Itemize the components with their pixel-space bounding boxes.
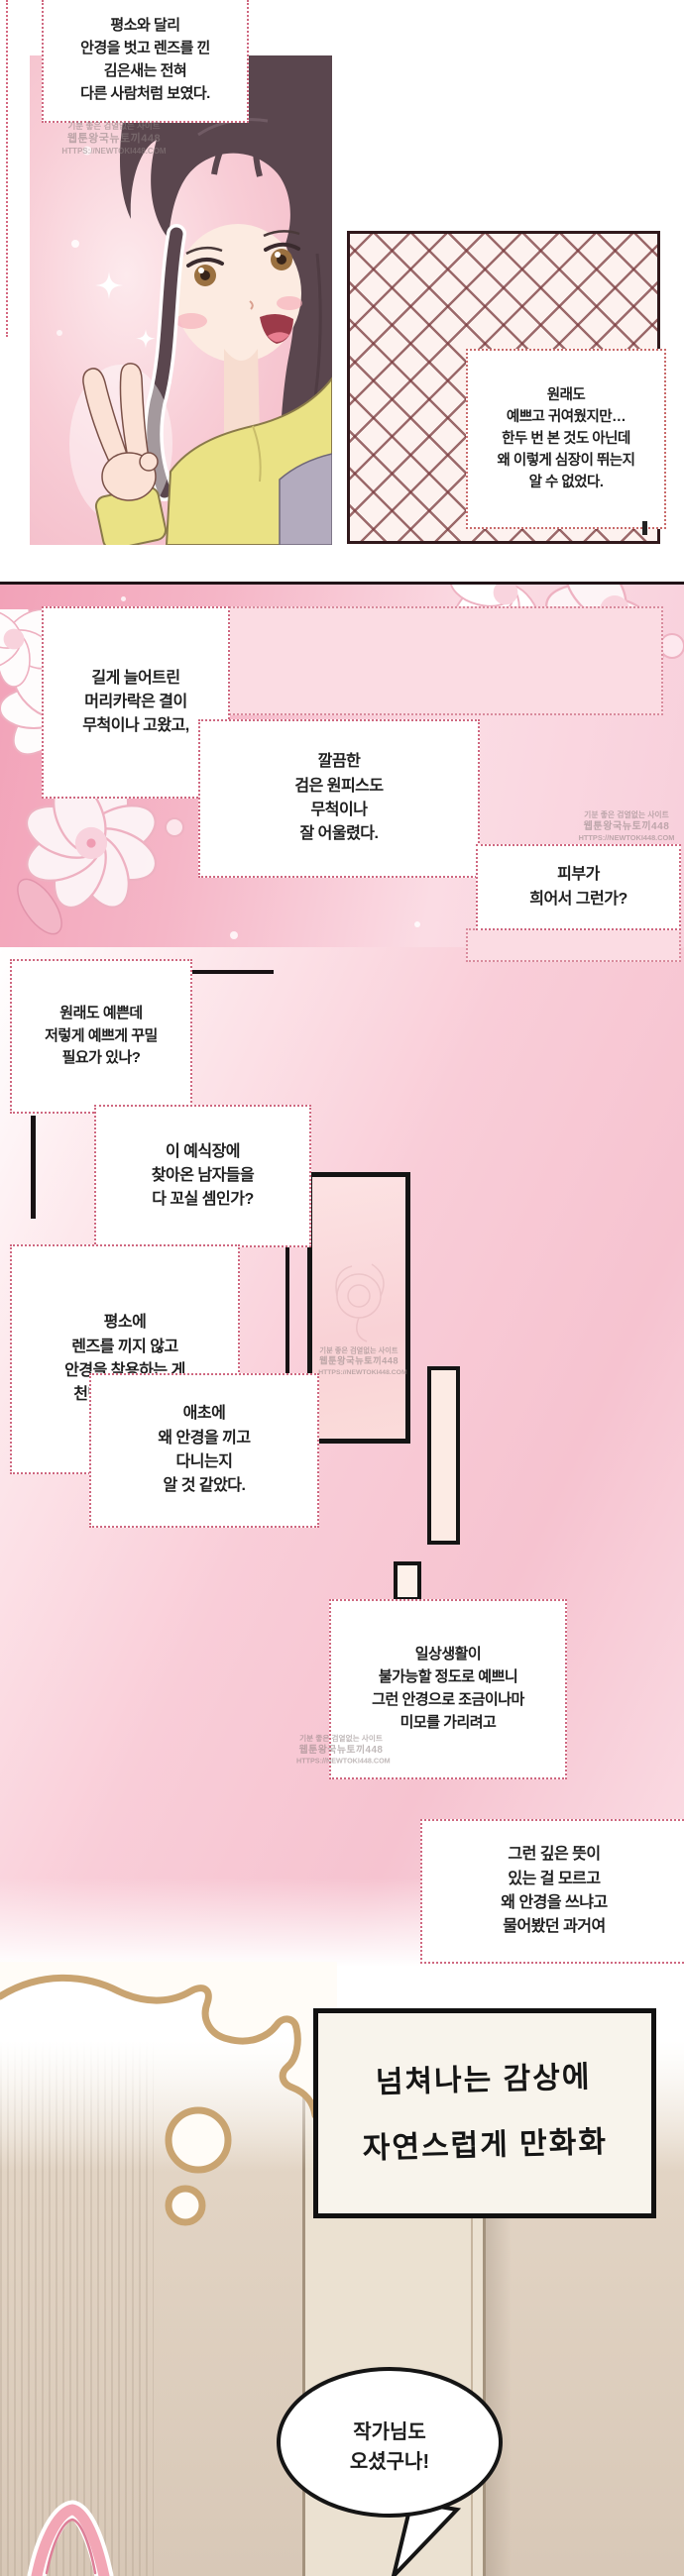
watermark-line: 웹툰왕국뉴토끼448 (40, 132, 188, 147)
thought-bubble-why-glasses: 애초에 왜 안경을 끼고 다니는지 알 것 같았다. (89, 1373, 319, 1528)
narration-text: 이 예식장에 찾아온 남자들을 다 꼬실 셈인가? (152, 1140, 255, 1213)
thought-bubble-main: 원래도 예쁘고 귀여웠지만… 한두 번 본 것도 아닌데 왜 이렇게 심장이 뛰… (466, 349, 666, 529)
narration-text: 애초에 왜 안경을 끼고 다니는지 알 것 같았다. (158, 1402, 250, 1498)
narration-text: 원래도 예쁘고 귀여웠지만… 한두 번 본 것도 아닌데 왜 이렇게 심장이 뛰… (498, 384, 635, 493)
cloud-circle-large (169, 2110, 228, 2170)
narration-text: 일상생활이 불가능할 정도로 예쁘니 그런 안경으로 조금이나마 미모를 가리려… (372, 1644, 524, 1734)
cloud-fill (0, 1962, 337, 2115)
panel-inset-tall (307, 1172, 410, 1444)
narration-box-intro: 평소와 달리 안경을 벗고 렌즈를 낀 김은새는 전혀 다른 사람처럼 보였다. (42, 0, 249, 123)
narration-text: 깔끔한 검은 원피스도 무척이나 잘 어울렸다. (294, 750, 383, 846)
site-watermark: 기분 좋은 검열없는 사이트 웹툰왕국뉴토끼448 HTTPS://NEWTOK… (577, 809, 675, 843)
page-edge-dotted-line (6, 0, 8, 337)
sparkle-dot (121, 596, 126, 601)
thought-bubble-dress: 깔끔한 검은 원피스도 무척이나 잘 어울렸다. (198, 719, 480, 878)
face (174, 224, 302, 363)
note-text: 넘쳐나는 감상에 자연스럽게 만화화 (361, 2045, 610, 2182)
panel-inset-narrow (427, 1366, 460, 1545)
site-watermark: 기분 좋은 검열없는 사이트 웹툰왕국뉴토끼448 HTTPS://NEWTOK… (40, 121, 188, 158)
watermark-line: 기분 좋은 검열없는 사이트 (40, 121, 188, 132)
site-watermark: 기분 좋은 검열없는 사이트 웹툰왕국뉴토끼448 HTTPS://NEWTOK… (318, 1346, 399, 1378)
watermark-line: HTTPS://NEWTOKI448.COM (40, 147, 188, 158)
panel-inset-small (394, 1561, 421, 1601)
accent-line-vertical (31, 1116, 36, 1219)
accent-line-horizontal (186, 970, 274, 974)
speech-text: 작가님도 오셨구나! (297, 2398, 482, 2497)
sparkle-dot (230, 931, 238, 939)
narration-text: 원래도 예쁜데 저렇게 예쁘게 꾸밀 필요가 있나? (45, 1003, 158, 1070)
thought-bubble-seduce: 이 예식장에 찾아온 남자들을 다 꼬실 셈인가? (94, 1105, 311, 1247)
thought-bubble-past: 그런 깊은 뜻이 있는 걸 모르고 왜 안경을 쓰냐고 물어봤던 과거여 (420, 1819, 684, 1964)
note-box: 넘쳐나는 감상에 자연스럽게 만화화 (313, 2008, 656, 2218)
narration-text: 길게 늘어트린 머리카락은 결이 무척이나 고왔고, (82, 667, 188, 739)
cloud-circle-small (169, 2189, 202, 2222)
narration-text: 피부가 희어서 그런가? (529, 863, 627, 912)
narration-text: 평소와 달리 안경을 벗고 렌즈를 낀 김은새는 전혀 다른 사람처럼 보였다. (80, 15, 210, 105)
narration-text: 그런 깊은 뜻이 있는 걸 모르고 왜 안경을 쓰냐고 물어봤던 과거여 (501, 1843, 607, 1939)
accent-tick (642, 521, 647, 535)
ribbon-illustration (15, 2500, 124, 2576)
panel-pink-inset-small (466, 928, 681, 962)
site-watermark: 기분 좋은 검열없는 사이트 웹툰왕국뉴토끼448 HTTPS://NEWTOK… (296, 1734, 386, 1767)
thought-bubble-skin: 피부가 희어서 그런가? (476, 844, 681, 930)
panel-pink-inset (226, 606, 663, 715)
thought-bubble-pretty: 원래도 예쁜데 저렇게 예쁘게 꾸밀 필요가 있나? (10, 959, 192, 1114)
thought-cloud (0, 1962, 337, 2259)
faint-flower-sketch (312, 1177, 405, 1439)
comic-page: 평소와 달리 안경을 벗고 렌즈를 낀 김은새는 전혀 다른 사람처럼 보였다.… (0, 0, 684, 2576)
sparkle-dot (414, 921, 420, 927)
